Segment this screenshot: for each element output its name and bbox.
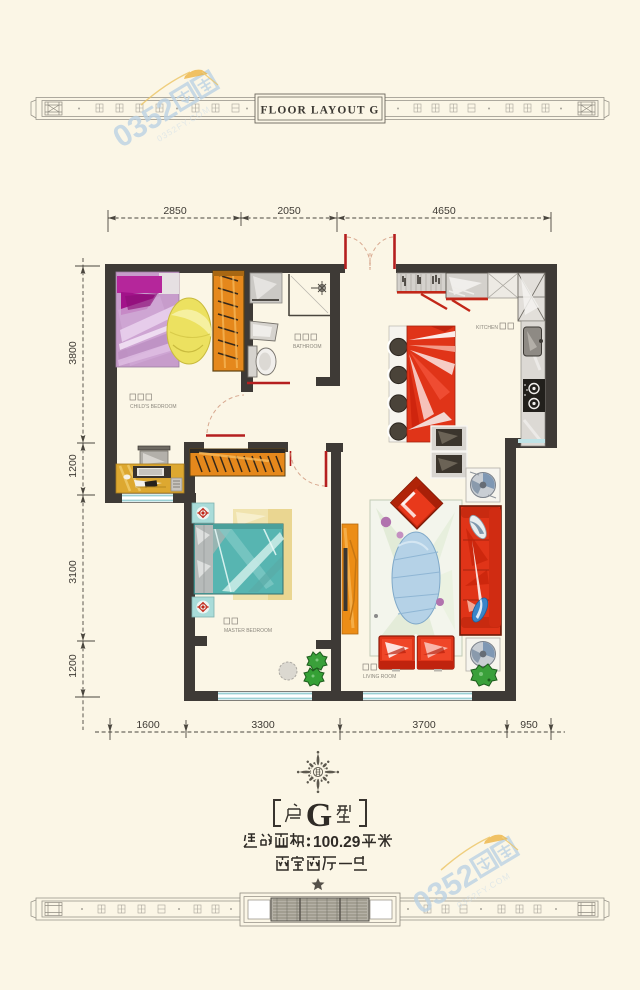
svg-text:FLOOR LAYOUT G: FLOOR LAYOUT G xyxy=(261,105,380,117)
svg-text:3700: 3700 xyxy=(412,719,436,731)
svg-text:CHILD'S BEDROOM: CHILD'S BEDROOM xyxy=(130,404,177,410)
svg-text:3800: 3800 xyxy=(67,341,79,365)
svg-text:LIVING ROOM: LIVING ROOM xyxy=(363,674,396,680)
svg-text:BATHROOM: BATHROOM xyxy=(293,344,322,350)
svg-text:100.29: 100.29 xyxy=(313,834,361,851)
svg-text:4650: 4650 xyxy=(432,205,456,217)
svg-text:3100: 3100 xyxy=(67,560,79,584)
svg-text:KITCHEN: KITCHEN xyxy=(476,325,498,331)
svg-text:1200: 1200 xyxy=(67,454,79,478)
svg-text:1200: 1200 xyxy=(67,654,79,678)
svg-text:MASTER BEDROOM: MASTER BEDROOM xyxy=(224,628,272,634)
svg-text:G: G xyxy=(306,797,332,834)
svg-text:2050: 2050 xyxy=(277,205,301,217)
svg-text:950: 950 xyxy=(520,719,538,731)
svg-text:1600: 1600 xyxy=(136,719,160,731)
svg-text:3300: 3300 xyxy=(251,719,275,731)
svg-text:2850: 2850 xyxy=(163,205,187,217)
